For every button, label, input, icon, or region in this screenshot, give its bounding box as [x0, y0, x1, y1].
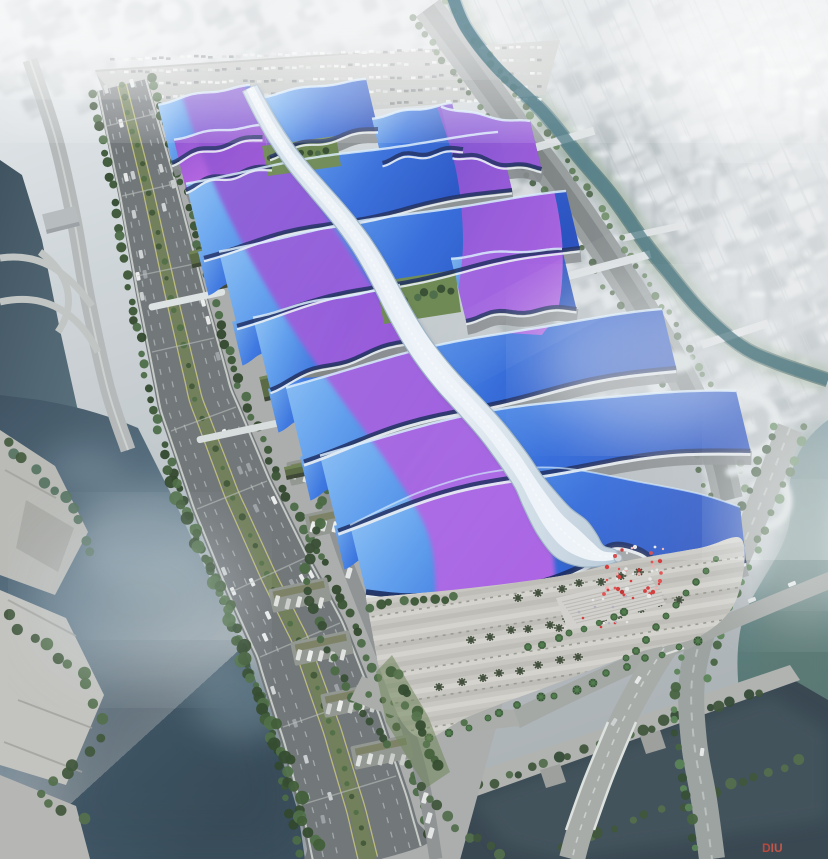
svg-text:DIU: DIU: [762, 841, 783, 855]
